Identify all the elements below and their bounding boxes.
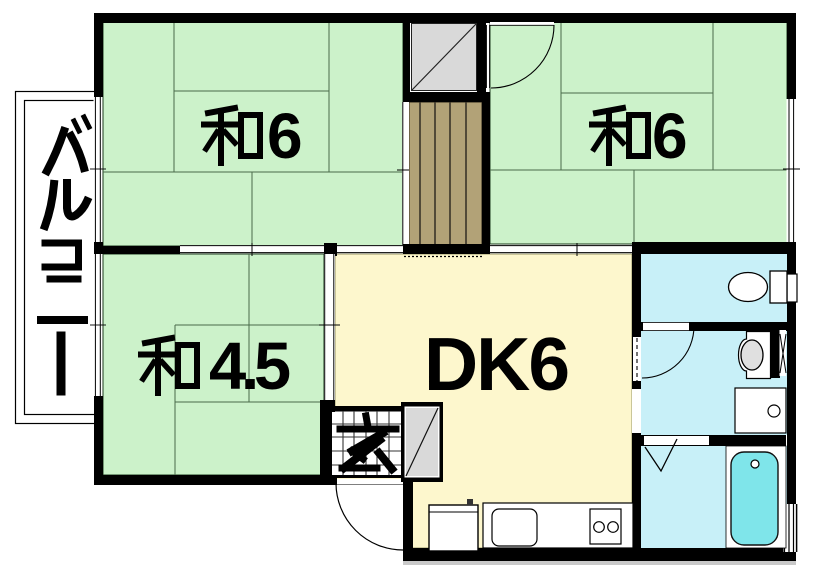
svg-text:DK6: DK6 [424,322,568,406]
svg-text:6: 6 [267,100,303,172]
svg-text:4.5: 4.5 [209,329,290,404]
svg-text:6: 6 [652,100,688,172]
